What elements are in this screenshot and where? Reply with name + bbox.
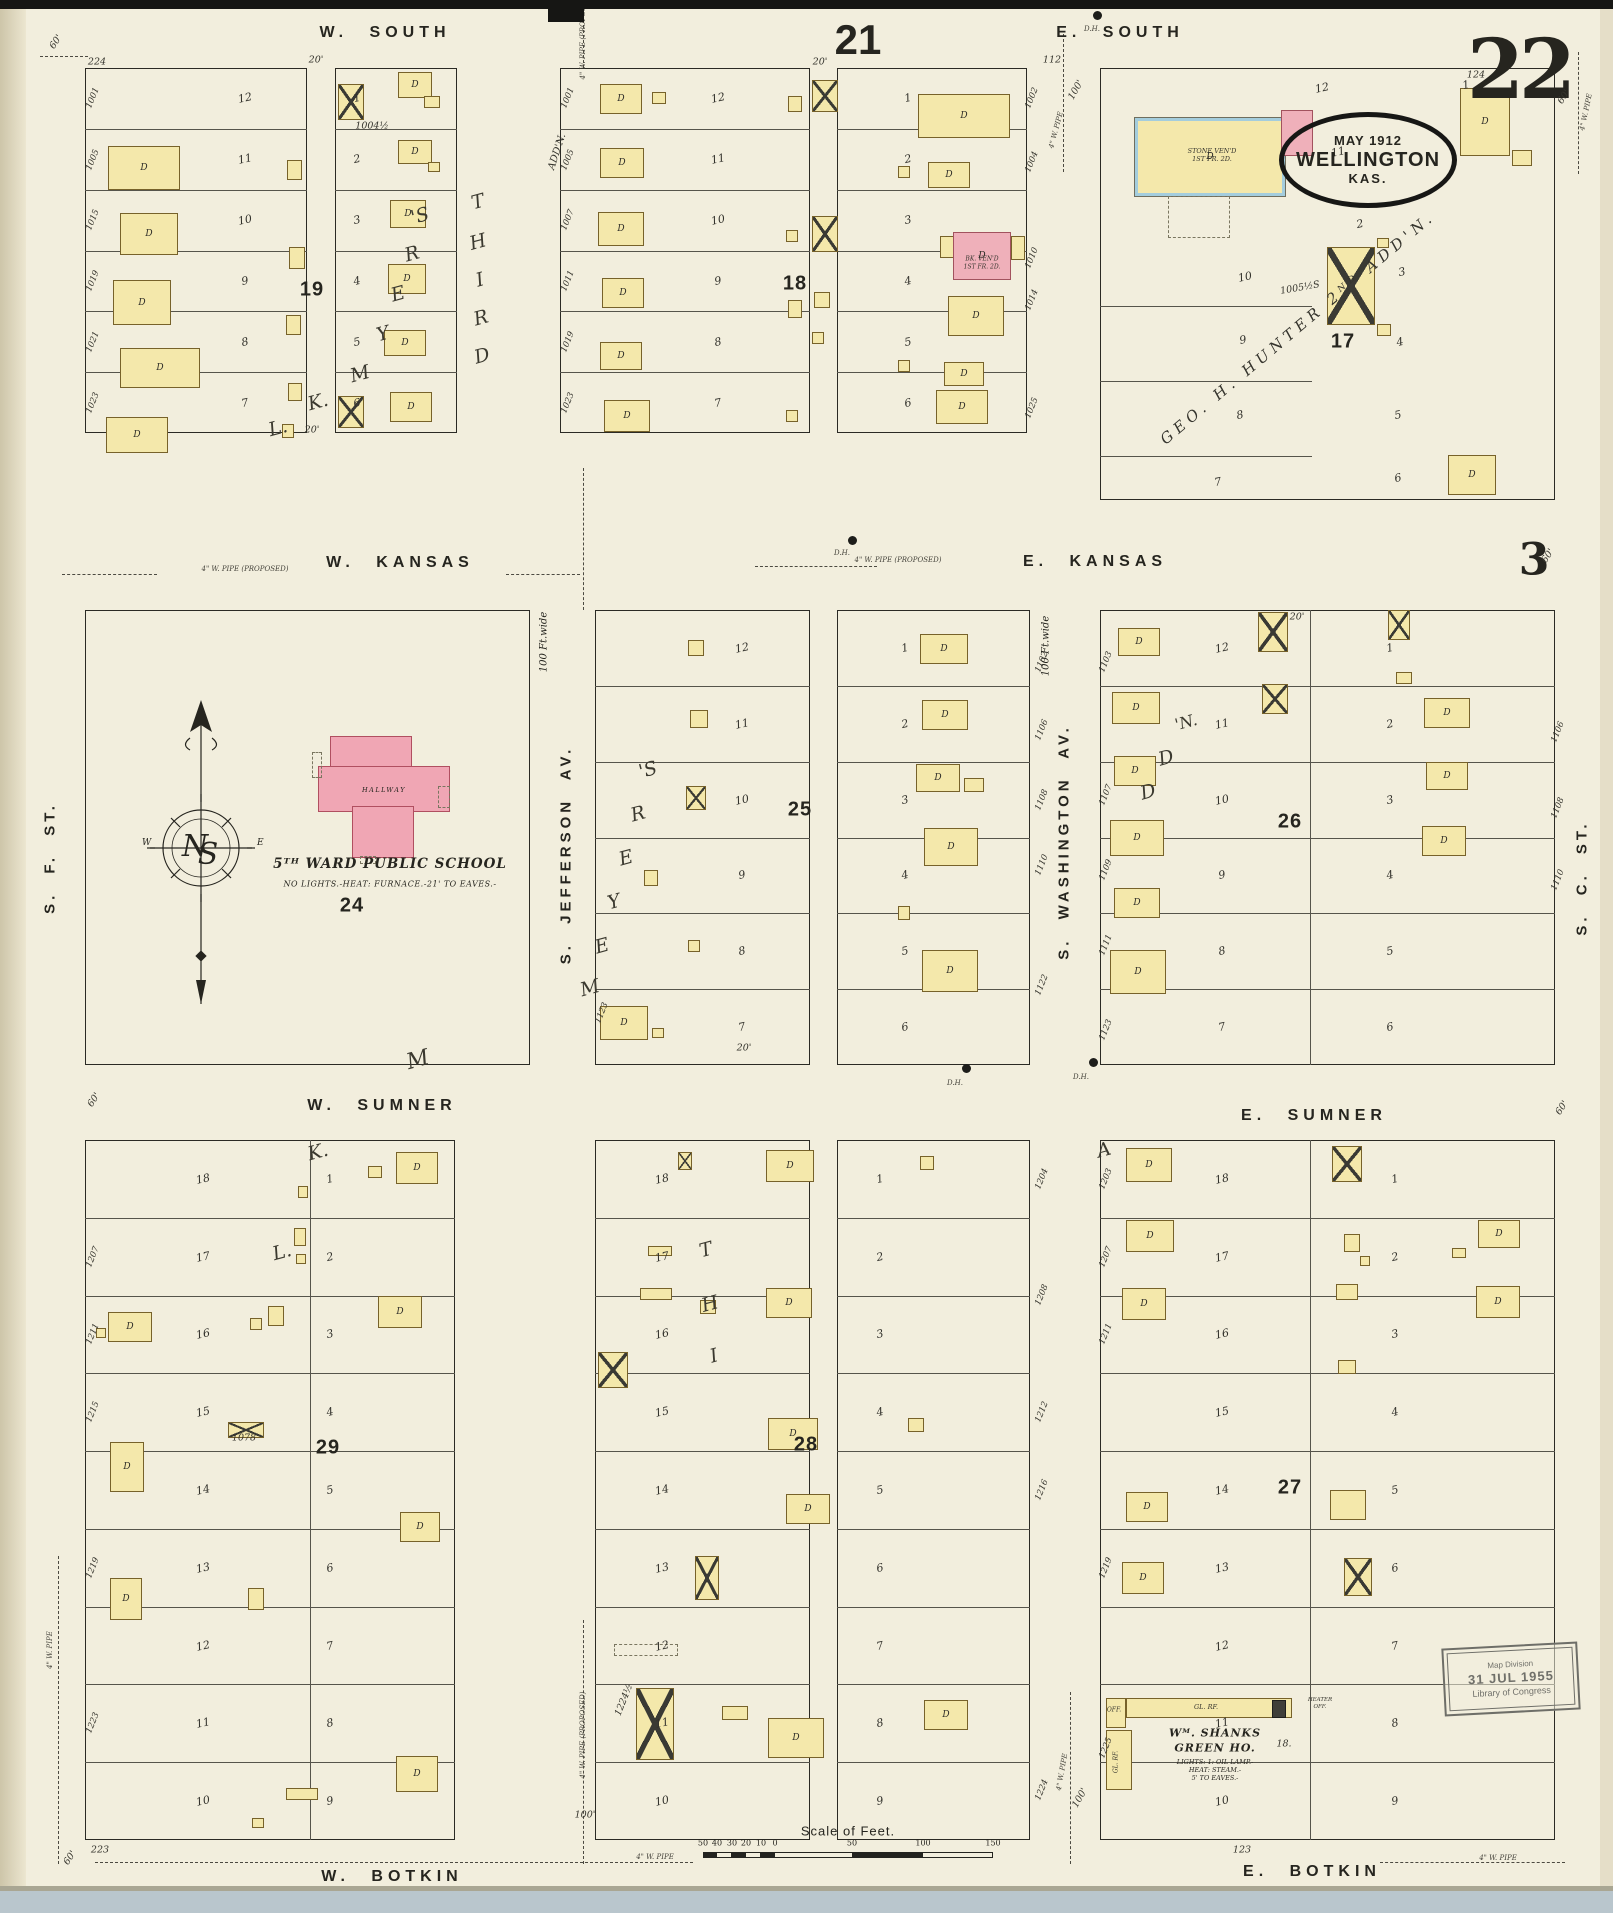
frame-building xyxy=(652,1028,664,1038)
water-pipe-label: 4" W. PIPE xyxy=(1479,1854,1517,1862)
building-type-letter: D xyxy=(1468,470,1475,480)
street-label: W. SUMNER xyxy=(307,1097,456,1115)
frame-building: D xyxy=(786,1494,830,1524)
block-number: 17 xyxy=(1331,331,1355,354)
compass-rose-icon: N S W E xyxy=(138,698,268,1018)
building-type-letter: D xyxy=(792,1733,799,1743)
lot-line xyxy=(560,251,810,252)
title-city: WELLINGTON xyxy=(1296,149,1440,172)
lot-line xyxy=(595,838,810,839)
greenhouse-note-heat: HEAT: STEAM.- xyxy=(1189,1766,1241,1774)
frame-building: D xyxy=(918,94,1010,138)
frame-building: D xyxy=(920,634,968,664)
fire-hydrant-dot xyxy=(962,1064,971,1073)
lot-line xyxy=(595,989,810,990)
frame-building xyxy=(424,96,440,108)
lot-number: 18 xyxy=(195,1171,211,1187)
scale-tick-label: 150 xyxy=(985,1839,1000,1848)
lot-line xyxy=(595,1762,810,1763)
heater-unit xyxy=(1272,1700,1286,1718)
lot-number: 18 xyxy=(654,1171,670,1187)
building-type-letter: D xyxy=(1143,1502,1150,1512)
frame-building xyxy=(296,1254,306,1264)
scan-edge-right xyxy=(1600,0,1613,1891)
crossed-barn xyxy=(1258,612,1288,652)
frame-building xyxy=(1336,1284,1358,1300)
frame-building xyxy=(298,1186,308,1198)
building-type-letter: D xyxy=(1495,1229,1502,1239)
water-pipe-line xyxy=(1578,52,1579,174)
lot-line xyxy=(837,372,1027,373)
building-type-letter: D xyxy=(145,229,152,239)
frame-building xyxy=(690,710,708,728)
street-label: W. BOTKIN xyxy=(321,1868,462,1886)
scan-edge-notch xyxy=(548,0,584,22)
lot-line xyxy=(1100,1529,1555,1530)
library-of-congress-stamp: Map Division 31 JUL 1955 Library of Cong… xyxy=(1441,1641,1580,1716)
frame-building xyxy=(252,1818,264,1828)
lot-line xyxy=(837,190,1027,191)
lot-line xyxy=(335,190,457,191)
building-type-letter: D xyxy=(942,1710,949,1720)
lot-line xyxy=(85,1218,455,1219)
lot-line xyxy=(1100,913,1555,914)
lot-line xyxy=(560,311,810,312)
building-type-letter: D xyxy=(1131,766,1138,776)
building-type-letter: D xyxy=(413,1769,420,1779)
lot-line xyxy=(560,129,810,130)
city-block xyxy=(837,1140,1030,1840)
building-type-letter: D xyxy=(785,1298,792,1308)
svg-text:S: S xyxy=(198,837,219,872)
block-number: 29 xyxy=(316,1437,340,1460)
building-type-letter: D xyxy=(617,224,624,234)
crossed-barn xyxy=(598,1352,628,1388)
building-type-letter: D xyxy=(619,288,626,298)
building-type-letter: D xyxy=(413,1163,420,1173)
measurement-label: 124 xyxy=(1467,70,1485,81)
porch-outline xyxy=(1168,196,1230,238)
frame-building: D xyxy=(1114,888,1160,918)
frame-building: D xyxy=(600,342,642,370)
building-type-letter: D xyxy=(416,1522,423,1532)
building-type-letter: D xyxy=(126,1322,133,1332)
frame-building: D xyxy=(766,1150,814,1182)
frame-building xyxy=(1360,1256,1370,1266)
building-type-letter: D xyxy=(140,163,147,173)
block-number: 18 xyxy=(783,273,807,296)
water-pipe-line xyxy=(62,574,157,575)
measurement-label: 1078 xyxy=(232,1433,256,1444)
frame-building: D xyxy=(948,296,1004,336)
lot-line xyxy=(837,1684,1030,1685)
measurement-label: 18. xyxy=(1276,1739,1291,1750)
street-label: S. JEFFERSON AV. xyxy=(558,746,575,964)
block-number: 24 xyxy=(340,895,364,918)
title-date: MAY 1912 xyxy=(1334,134,1402,149)
measurement-label: 123 xyxy=(1233,1845,1251,1856)
building-type-letter: D xyxy=(403,274,410,284)
building-type-letter: D xyxy=(1443,708,1450,718)
frame-building xyxy=(1330,1490,1366,1520)
frame-building xyxy=(788,300,802,318)
building-type-letter: D xyxy=(618,158,625,168)
measurement-label: 60' xyxy=(47,33,64,51)
building-type-letter: D xyxy=(1139,1573,1146,1583)
frame-building: D xyxy=(922,700,968,730)
frame-building xyxy=(786,230,798,242)
building-type-letter: D xyxy=(945,170,952,180)
lot-line xyxy=(1100,838,1555,839)
house-number: 1208 xyxy=(1033,1283,1050,1307)
lot-number: 10 xyxy=(1214,792,1230,808)
building-type-letter: D xyxy=(407,402,414,412)
scale-tick-label: 50 xyxy=(847,1839,857,1848)
building-type-letter: D xyxy=(804,1504,811,1514)
lot-line xyxy=(595,686,810,687)
frame-building xyxy=(368,1166,382,1178)
scale-tick-label: 40 xyxy=(712,1839,722,1848)
lot-line xyxy=(595,913,810,914)
frame-building xyxy=(286,1788,318,1800)
house-number: 1122 xyxy=(1033,973,1050,997)
scale-tick-label: 30 xyxy=(727,1839,737,1848)
school-construction-note: NO LIGHTS.-HEAT: FURNACE.-21' TO EAVES.- xyxy=(283,880,496,889)
frame-building xyxy=(1011,236,1025,260)
street-width-note: 100 Ft.wide xyxy=(539,612,550,672)
lot-line xyxy=(1100,1218,1555,1219)
frame-building: D xyxy=(398,140,432,164)
water-pipe-label: 4" W. PIPE xyxy=(1578,93,1594,131)
scale-bar xyxy=(703,1852,993,1858)
lot-number: 12 xyxy=(195,1638,211,1654)
frame-building: D xyxy=(600,148,644,178)
frame-building: D xyxy=(604,400,650,432)
scan-edge-left xyxy=(0,0,26,1891)
measurement-label: 100' xyxy=(1066,78,1086,101)
frame-building xyxy=(289,247,305,269)
addition-name-letter: I xyxy=(474,268,487,291)
frame-building xyxy=(268,1306,284,1326)
lot-number: 12 xyxy=(654,1638,670,1654)
frame-building: D xyxy=(598,212,644,246)
measurement-label: 20' xyxy=(1290,612,1305,623)
block-center-line xyxy=(310,1140,311,1840)
building-type-letter: D xyxy=(122,1594,129,1604)
frame-building xyxy=(652,92,666,104)
frame-building: D xyxy=(1122,1288,1166,1320)
building-type-letter: D xyxy=(1134,967,1141,977)
building-type-letter: D xyxy=(617,351,624,361)
scale-bar-segment xyxy=(760,1853,775,1857)
lot-line xyxy=(1100,456,1312,457)
frame-building: D xyxy=(928,162,970,188)
building-type-letter: D xyxy=(623,411,630,421)
street-label: S. F. ST. xyxy=(42,802,59,914)
lot-line xyxy=(595,762,810,763)
frame-building xyxy=(644,870,658,886)
frame-building: D xyxy=(1448,455,1496,495)
frame-building xyxy=(428,162,440,172)
lot-line xyxy=(595,1607,810,1608)
house-number: 1204 xyxy=(1033,1167,1050,1191)
lot-line xyxy=(560,372,810,373)
street-label: S. WASHINGTON AV. xyxy=(1056,724,1073,960)
frame-building xyxy=(286,315,301,335)
crossed-barn xyxy=(686,786,706,810)
map-annotation: GL. RF. xyxy=(1194,1703,1218,1711)
scale-tick-label: 0 xyxy=(772,1839,777,1848)
street-label: S. C. ST. xyxy=(1574,820,1591,935)
water-pipe-line xyxy=(1070,1692,1071,1864)
building-type-letter: D xyxy=(1145,1160,1152,1170)
greenhouse-note-lights: LIGHTS: 1: OIL LAMP.- xyxy=(1177,1758,1253,1766)
lot-line xyxy=(1100,1451,1555,1452)
lot-line xyxy=(837,686,1030,687)
building-type-letter: D xyxy=(1135,637,1142,647)
block-center-line xyxy=(1310,610,1311,1065)
frame-building: D xyxy=(120,348,200,388)
measurement-label: 223 xyxy=(91,1845,109,1856)
frame-building xyxy=(688,640,704,656)
frame-building: D xyxy=(106,417,168,453)
frame-building: D xyxy=(390,392,432,422)
adjacent-sheet-number-top: 21 xyxy=(835,16,882,64)
building-type-letter: D xyxy=(958,402,965,412)
fire-hydrant-dot xyxy=(1093,11,1102,20)
frame-building: D xyxy=(1118,628,1160,656)
frame-building: D xyxy=(1110,950,1166,994)
title-oval: MAY 1912 WELLINGTON KAS. xyxy=(1279,112,1457,208)
measurement-label: 20' xyxy=(309,55,324,66)
lot-line xyxy=(560,190,810,191)
frame-building: D xyxy=(1122,1562,1164,1594)
frame-building xyxy=(250,1318,262,1330)
frame-building: D xyxy=(1422,826,1466,856)
scan-edge-top xyxy=(0,0,1613,9)
frame-building xyxy=(294,1228,306,1246)
lot-number: 17 xyxy=(1214,1249,1230,1265)
lot-number: 12 xyxy=(1214,1638,1230,1654)
lot-number: 11 xyxy=(734,716,750,732)
scale-title: Scale of Feet. xyxy=(801,1824,895,1839)
frame-building: D xyxy=(396,1152,438,1184)
lot-line xyxy=(335,251,457,252)
frame-building xyxy=(920,1156,934,1170)
lot-line xyxy=(85,129,307,130)
building-type-letter: D xyxy=(1494,1297,1501,1307)
street-width-note: 100 Ft.wide xyxy=(1041,616,1052,676)
frame-building: D xyxy=(396,1756,438,1792)
water-pipe-label: 4" W. PIPE xyxy=(1055,1753,1069,1791)
lot-line xyxy=(837,1296,1030,1297)
map-paper: 21 22 3 MAY 1912 WELLINGTON KAS. HALLWAY… xyxy=(0,0,1613,1891)
frame-building: D xyxy=(120,213,178,255)
frame-building: D xyxy=(1126,1148,1172,1182)
lot-line xyxy=(1100,1373,1555,1374)
water-pipe-label: 4" W. PIPE xyxy=(636,1853,674,1861)
frame-building: D xyxy=(1112,692,1160,724)
measurement-label: 100' xyxy=(1070,1786,1090,1809)
map-annotation: HEATER OFF. xyxy=(1306,1697,1334,1711)
addition-name-letter: T xyxy=(469,190,487,215)
paper-bottom-edge xyxy=(0,1886,1613,1891)
frame-building xyxy=(940,236,954,258)
frame-building xyxy=(1377,324,1391,336)
frame-building xyxy=(288,383,302,401)
school-hallway-label: HALLWAY xyxy=(362,786,406,794)
crossed-barn xyxy=(1388,610,1410,640)
measurement-label: 112 xyxy=(1043,55,1061,66)
measurement-label: 1004½ xyxy=(355,121,388,132)
frame-building: D xyxy=(108,146,180,190)
crossed-barn xyxy=(695,1556,719,1600)
water-pipe-line xyxy=(40,56,88,57)
title-state: KAS. xyxy=(1348,172,1387,187)
hydrant-label: D.H. xyxy=(1084,25,1100,33)
frame-building: D xyxy=(766,1288,812,1318)
water-pipe-label: 4" W. PIPE (PROPOSED) xyxy=(855,556,942,564)
scale-tick-label: 10 xyxy=(756,1839,766,1848)
hydrant-label: D.H. xyxy=(1073,1073,1089,1081)
frame-building: D xyxy=(1476,1286,1520,1318)
street-label: W. SOUTH xyxy=(319,24,450,42)
block-number: 19 xyxy=(300,279,324,302)
frame-building: D xyxy=(916,764,960,792)
addition-name-letter: R xyxy=(471,306,491,331)
scale-bar-segment xyxy=(703,1853,717,1857)
house-number: 1110 xyxy=(1033,853,1050,877)
frame-building xyxy=(1396,672,1412,684)
block-number: 25 xyxy=(788,799,812,822)
measurement-label: 60' xyxy=(61,1849,78,1867)
building-type-letter: D xyxy=(934,773,941,783)
greenhouse-name-label: GREEN HO. xyxy=(1174,1742,1255,1755)
addition-name-letter: K. xyxy=(305,389,330,415)
crossed-barn xyxy=(1344,1558,1372,1596)
lot-line xyxy=(837,1373,1030,1374)
lot-line xyxy=(1100,989,1555,990)
hydrant-label: D.H. xyxy=(947,1079,963,1087)
frame-building: D xyxy=(1110,820,1164,856)
scale-tick-label: 50 xyxy=(698,1839,708,1848)
building-type-letter: D xyxy=(1133,898,1140,908)
frame-building xyxy=(248,1588,264,1610)
frame-building: D xyxy=(110,1578,142,1620)
lot-line xyxy=(1100,1607,1555,1608)
frame-building: D xyxy=(398,72,432,98)
street-label: W. KANSAS xyxy=(326,554,474,572)
measurement-label: 60' xyxy=(1553,1099,1570,1117)
scale-tick-label: 20 xyxy=(741,1839,751,1848)
measurement-label: 100' xyxy=(575,1810,596,1821)
frame-building: D xyxy=(1424,698,1470,728)
lot-line xyxy=(837,1607,1030,1608)
frame-building: D xyxy=(936,390,988,424)
building-type-letter: D xyxy=(1133,833,1140,843)
building-type-letter: D xyxy=(1440,836,1447,846)
fire-hydrant-dot xyxy=(848,536,857,545)
building-type-letter: D xyxy=(123,1462,130,1472)
frame-building: D xyxy=(400,1512,440,1542)
frame-building xyxy=(1344,1234,1360,1252)
street-label: E. BOTKIN xyxy=(1243,1863,1381,1881)
svg-text:E: E xyxy=(256,838,264,848)
frame-building: D xyxy=(113,280,171,325)
crossed-barn xyxy=(1332,1146,1362,1182)
lot-number: 13 xyxy=(654,1560,670,1576)
frame-building: D xyxy=(924,1700,968,1730)
building-type-letter: D xyxy=(401,338,408,348)
lot-number: 12 xyxy=(734,640,750,656)
hydrant-label: D.H. xyxy=(834,549,850,557)
lot-line xyxy=(85,1373,455,1374)
frame-building xyxy=(814,292,830,308)
lot-line xyxy=(85,251,307,252)
lot-line xyxy=(335,311,457,312)
addition-name-letter: D xyxy=(472,343,492,368)
map-annotation: OFF. xyxy=(1107,1706,1121,1714)
building-type-letter: D xyxy=(411,80,418,90)
house-number: 1216 xyxy=(1033,1478,1050,1502)
school-name-label: 5ᵀᴴ WARD PUBLIC SCHOOL xyxy=(273,856,507,872)
water-pipe-line xyxy=(58,1556,59,1864)
lot-number: 17 xyxy=(195,1249,211,1265)
frame-building xyxy=(1338,1360,1356,1374)
water-pipe-line xyxy=(1063,34,1064,172)
water-pipe-line xyxy=(506,574,580,575)
water-pipe-line xyxy=(1380,1862,1565,1863)
crossed-barn xyxy=(812,80,838,112)
frame-building: D xyxy=(600,84,642,114)
water-pipe-line xyxy=(95,1862,693,1863)
frame-building xyxy=(898,166,910,178)
lot-number: 18 xyxy=(1214,1171,1230,1187)
lot-line xyxy=(595,1218,810,1219)
frame-building: D xyxy=(1126,1220,1174,1252)
svg-text:W: W xyxy=(142,838,152,848)
frame-building xyxy=(1512,150,1532,166)
school-porch xyxy=(438,786,450,808)
building-type-letter: D xyxy=(941,710,948,720)
building-type-letter: D xyxy=(411,147,418,157)
lot-line xyxy=(1100,1762,1555,1763)
frame-building xyxy=(898,360,910,372)
frame-building: D xyxy=(768,1718,824,1758)
lot-line xyxy=(1100,381,1312,382)
frame-building xyxy=(898,906,910,920)
frame-building: D xyxy=(602,278,644,308)
frame-building xyxy=(788,96,802,112)
frame-building: D xyxy=(108,1312,152,1342)
map-annotation: STONE VEN'D 1ST FR. 2D. xyxy=(1181,147,1243,163)
house-number: 1108 xyxy=(1033,788,1050,812)
scale-tick-label: 100 xyxy=(915,1839,930,1848)
frame-building: D xyxy=(110,1442,144,1492)
water-pipe-label: 4" W. PIPE (PROPOSED) xyxy=(202,565,289,573)
lot-line xyxy=(837,1451,1030,1452)
building-type-letter: D xyxy=(1132,703,1139,713)
lot-line xyxy=(837,1218,1030,1219)
lot-number: 17 xyxy=(654,1249,670,1265)
lot-line xyxy=(1100,306,1312,307)
building-type-letter: D xyxy=(138,298,145,308)
block-number: 26 xyxy=(1278,811,1302,834)
frame-building: D xyxy=(922,950,978,992)
lot-number: 13 xyxy=(195,1560,211,1576)
lot-line xyxy=(837,1762,1030,1763)
building-type-letter: D xyxy=(972,311,979,321)
